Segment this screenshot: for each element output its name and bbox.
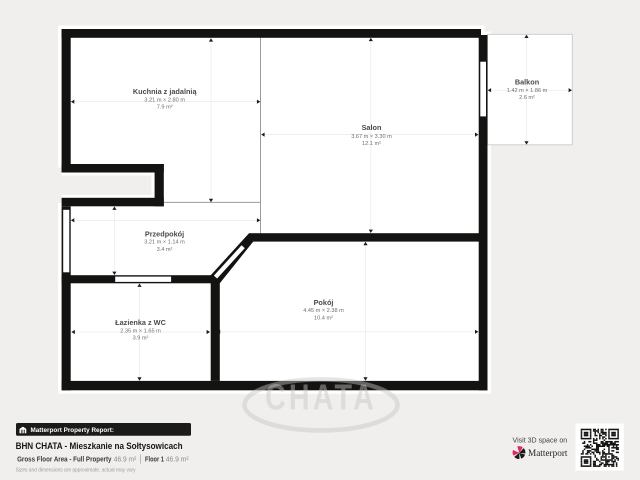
- svg-text:2.6 m²: 2.6 m²: [519, 95, 535, 101]
- svg-text:3.21 m × 1.14 m: 3.21 m × 1.14 m: [144, 240, 185, 246]
- svg-text:46.9 m²: 46.9 m²: [166, 454, 189, 463]
- svg-text:Balkon: Balkon: [515, 78, 539, 87]
- svg-text:Gross Floor Area - Full Proper: Gross Floor Area - Full Property: [17, 454, 112, 463]
- svg-text:3.21 m × 2.80 m: 3.21 m × 2.80 m: [144, 97, 185, 103]
- svg-text:Matterport Property Report:: Matterport Property Report:: [31, 427, 115, 434]
- svg-text:Pokój: Pokój: [314, 298, 334, 307]
- svg-text:Salon: Salon: [362, 123, 382, 132]
- svg-text:CHATA: CHATA: [265, 377, 377, 418]
- svg-text:12.1 m²: 12.1 m²: [362, 141, 381, 147]
- svg-text:Sizes and dimensions are appro: Sizes and dimensions are approximate, ac…: [16, 468, 136, 474]
- svg-text:3.9 m²: 3.9 m²: [133, 336, 149, 342]
- svg-text:10.4 m²: 10.4 m²: [314, 316, 333, 322]
- svg-text:Przedpokój: Przedpokój: [145, 229, 184, 238]
- svg-text:Visit 3D space on: Visit 3D space on: [513, 435, 568, 444]
- svg-text:Floor 1: Floor 1: [145, 454, 164, 463]
- svg-text:Łazienka z WC: Łazienka z WC: [115, 318, 166, 327]
- svg-text:Kuchnia z jadalnią: Kuchnia z jadalnią: [133, 87, 198, 96]
- svg-text:46.9 m²: 46.9 m²: [114, 454, 137, 463]
- svg-text:3.67 m × 3.30 m: 3.67 m × 3.30 m: [351, 134, 392, 140]
- svg-text:4.45 m × 2.38 m: 4.45 m × 2.38 m: [303, 308, 344, 314]
- svg-text:1.42 m × 1.86 m: 1.42 m × 1.86 m: [507, 88, 548, 94]
- svg-text:Matterport: Matterport: [528, 448, 568, 459]
- svg-text:3.4 m²: 3.4 m²: [157, 247, 173, 253]
- svg-text:2.35 m × 1.65 m: 2.35 m × 1.65 m: [120, 328, 161, 334]
- svg-text:7.9 m²: 7.9 m²: [157, 105, 173, 111]
- svg-text:BHN CHATA - Mieszkanie na Sołt: BHN CHATA - Mieszkanie na Sołtysowicach: [16, 440, 183, 451]
